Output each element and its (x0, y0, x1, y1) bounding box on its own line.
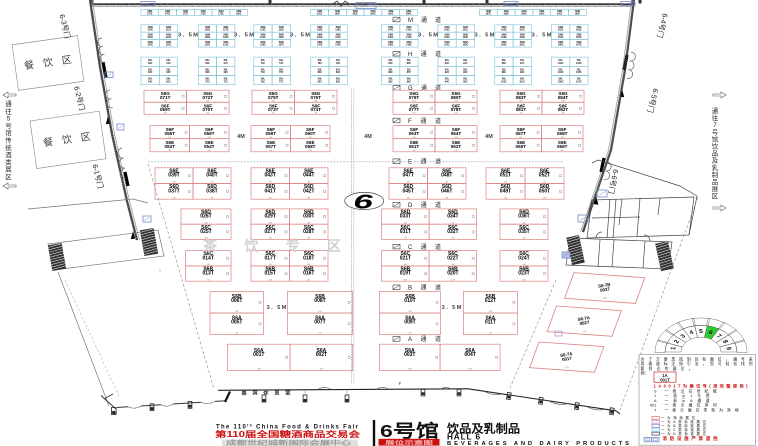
svg-text:154C: 154C (444, 44, 450, 47)
svg-text:033T: 033T (400, 214, 411, 220)
svg-text:3. 5M: 3. 5M (234, 33, 254, 39)
svg-text:147C: 147C (406, 36, 412, 39)
svg-text:009T: 009T (404, 320, 415, 326)
svg-text:86C: 86C (388, 71, 393, 74)
svg-text:号: 号 (5, 122, 11, 130)
svg-text:121C: 121C (166, 29, 172, 32)
svg-text:006T: 006T (231, 298, 242, 304)
svg-text:3. 5M: 3. 5M (267, 305, 287, 311)
svg-text:181C: 181C (317, 13, 323, 16)
svg-text:10M: 10M (468, 369, 472, 371)
svg-text:139C: 139C (335, 29, 341, 32)
svg-text:乳: 乳 (712, 163, 719, 172)
svg-text:6M: 6M (413, 150, 416, 152)
svg-text:137C: 137C (278, 44, 284, 47)
svg-text:60C: 60C (148, 62, 153, 65)
svg-text:186C: 186C (406, 13, 412, 16)
svg-text:5: 5 (699, 329, 704, 335)
svg-text:164C: 164C (558, 36, 564, 39)
svg-text:052T: 052T (539, 173, 550, 179)
svg-text:022T: 022T (447, 255, 458, 261)
svg-text:馆: 馆 (712, 134, 718, 143)
svg-text:6M: 6M (562, 112, 565, 114)
svg-text:012T: 012T (485, 298, 496, 304)
svg-text:002T: 002T (316, 352, 327, 358)
svg-text:6M: 6M (404, 279, 407, 281)
svg-text:6M: 6M (314, 112, 317, 114)
svg-text:3. 5M: 3. 5M (442, 305, 462, 311)
svg-text:007T: 007T (314, 320, 325, 326)
svg-text:192C: 192C (575, 13, 581, 16)
svg-text:048T: 048T (441, 173, 452, 179)
svg-text:043T: 043T (264, 173, 275, 179)
svg-text:62C: 62C (148, 71, 153, 74)
svg-text:6M: 6M (452, 238, 455, 240)
svg-text:6M: 6M (207, 279, 210, 281)
svg-text:F: F (399, 381, 402, 386)
svg-text:020T: 020T (447, 271, 458, 277)
svg-text:008T: 008T (314, 298, 325, 304)
svg-text:026T: 026T (200, 214, 211, 220)
svg-text:054T: 054T (204, 144, 215, 149)
svg-text:128C: 128C (205, 36, 211, 39)
svg-text:143C: 143C (335, 44, 341, 47)
svg-text:129C: 129C (223, 36, 229, 39)
svg-text:6M: 6M (319, 333, 322, 335)
svg-text:005T: 005T (231, 320, 242, 326)
svg-text:96C: 96C (502, 62, 507, 65)
svg-text:036T: 036T (518, 214, 529, 220)
svg-text:166C: 166C (558, 44, 564, 47)
svg-text:057T: 057T (266, 144, 277, 149)
svg-text:83C: 83C (336, 80, 341, 83)
svg-text:71C: 71C (224, 80, 229, 83)
svg-text:类: 类 (5, 157, 12, 166)
svg-text:6M: 6M (307, 279, 310, 281)
svg-text:6M: 6M (445, 197, 448, 199)
svg-text:001: 001 (650, 404, 656, 408)
svg-text:140C: 140C (317, 36, 323, 39)
svg-text:74C: 74C (261, 71, 266, 74)
svg-text:034T: 034T (447, 214, 458, 220)
svg-text:6M: 6M (455, 150, 458, 152)
svg-text:3. 5M: 3. 5M (418, 33, 438, 39)
svg-text:6M: 6M (307, 197, 310, 199)
svg-text:014T: 014T (202, 255, 213, 261)
svg-text:056T: 056T (204, 131, 215, 136)
svg-text:展: 展 (712, 185, 719, 193)
svg-text:024T: 024T (518, 255, 529, 261)
svg-text:12M: 12M (582, 330, 587, 333)
svg-text:80C: 80C (318, 71, 323, 74)
svg-text:046T: 046T (441, 188, 452, 194)
svg-text:029T: 029T (264, 214, 275, 220)
svg-text:068T: 068T (557, 131, 568, 136)
svg-text:152C: 152C (444, 36, 450, 39)
svg-text:87C: 87C (407, 71, 412, 74)
svg-text:70C: 70C (205, 80, 210, 83)
svg-text:051T: 051T (500, 173, 511, 179)
svg-text:展位示意图: 展位示意图 (385, 438, 433, 446)
svg-text:4M: 4M (364, 134, 372, 140)
svg-text:3. 5M: 3. 5M (178, 33, 198, 39)
svg-text:047T: 047T (402, 173, 413, 179)
svg-text:6M: 6M (168, 150, 171, 152)
svg-text:067T: 067T (516, 131, 527, 136)
svg-text:162C: 162C (558, 29, 564, 32)
svg-text:027T: 027T (264, 229, 275, 235)
svg-text:031T: 031T (400, 229, 411, 235)
svg-text:6M: 6M (309, 150, 312, 152)
svg-text:136C: 136C (260, 44, 266, 47)
svg-text:134C: 134C (260, 36, 266, 39)
svg-text:82C: 82C (318, 80, 323, 83)
svg-text:为了方便您找到目标展位，编号采: 为了方便您找到目标展位，编号采 (641, 356, 753, 361)
svg-text:030T: 030T (303, 214, 314, 220)
svg-text:69C: 69C (224, 71, 229, 74)
svg-text:91C: 91C (463, 62, 468, 65)
svg-text:165C: 165C (576, 36, 582, 39)
svg-text:5: 5 (7, 116, 11, 123)
svg-text:003T: 003T (404, 352, 415, 358)
svg-text:67C: 67C (224, 62, 229, 65)
svg-text:123C: 123C (166, 36, 172, 39)
svg-text:12M: 12M (602, 297, 607, 300)
svg-text:6M: 6M (307, 238, 310, 240)
svg-text:148C: 148C (388, 44, 394, 47)
svg-text:101C: 101C (519, 80, 525, 83)
svg-text:89C: 89C (407, 80, 412, 83)
svg-text:6M: 6M (489, 333, 492, 335)
svg-text:3. 5M: 3. 5M (290, 33, 310, 39)
svg-text:179C: 179C (218, 13, 224, 16)
svg-text:144C: 144C (388, 29, 394, 32)
svg-text:6号馆: 6号馆 (380, 421, 439, 441)
svg-text:042T: 042T (303, 188, 314, 194)
svg-text:141C: 141C (335, 36, 341, 39)
svg-text:035T: 035T (518, 229, 529, 235)
svg-text:第110届全国糖酒商品交易会: 第110届全国糖酒商品交易会 (215, 429, 361, 439)
svg-text:138C: 138C (317, 29, 323, 32)
svg-text:64C: 64C (148, 80, 153, 83)
svg-text:105C: 105C (576, 71, 582, 74)
svg-text:058T: 058T (305, 144, 316, 149)
svg-text:6M: 6M (208, 150, 211, 152)
svg-text:182C: 182C (335, 13, 341, 16)
svg-text:往: 往 (712, 113, 719, 122)
svg-text:021T: 021T (400, 255, 411, 261)
svg-text:158C: 158C (501, 36, 507, 39)
svg-text:展: 展 (5, 166, 12, 174)
svg-text:038T: 038T (206, 188, 217, 194)
svg-text:135C: 135C (278, 36, 284, 39)
svg-text:132C: 132C (260, 29, 266, 32)
svg-text:183C: 183C (352, 13, 358, 16)
svg-text:023T: 023T (518, 271, 529, 277)
svg-text:61C: 61C (166, 62, 171, 65)
svg-text:157C: 157C (519, 29, 525, 32)
svg-text:6M: 6M (520, 112, 523, 114)
svg-text:061T: 061T (409, 144, 420, 149)
svg-text:95C: 95C (463, 80, 468, 83)
svg-text:155C: 155C (462, 44, 468, 47)
svg-text:通: 通 (5, 99, 12, 108)
svg-text:7: 7 (713, 122, 717, 129)
svg-text:例：: 例： (641, 370, 649, 376)
svg-text:188C: 188C (503, 13, 509, 16)
svg-text:10M: 10M (257, 369, 261, 371)
svg-text:号: 号 (712, 128, 718, 136)
svg-text:145C: 145C (406, 29, 412, 32)
svg-text:041T: 041T (264, 188, 275, 194)
svg-text:88C: 88C (388, 80, 393, 83)
svg-text:120C: 120C (147, 29, 153, 32)
svg-text:通: 通 (712, 106, 719, 115)
svg-text:4M: 4M (485, 134, 493, 140)
svg-text:区: 区 (5, 173, 12, 181)
svg-text:049T: 049T (500, 188, 511, 194)
svg-text:93C: 93C (463, 71, 468, 74)
svg-text:制: 制 (712, 170, 718, 179)
svg-text:017T: 017T (264, 255, 275, 261)
svg-text:6M: 6M (409, 333, 412, 335)
svg-text:185C: 185C (388, 13, 394, 16)
svg-text:6M: 6M (206, 112, 209, 114)
svg-text:149C: 149C (406, 44, 412, 47)
svg-text:65C: 65C (166, 80, 171, 83)
svg-text:6M: 6M (164, 112, 167, 114)
svg-text:106C: 106C (558, 80, 564, 83)
svg-text:66C: 66C (205, 62, 210, 65)
svg-text:76C: 76C (261, 80, 266, 83)
svg-text:050T: 050T (539, 188, 550, 194)
svg-text:统: 统 (5, 143, 12, 152)
svg-text:6M: 6M (455, 112, 458, 114)
svg-text:98C: 98C (502, 71, 507, 74)
svg-text:6M: 6M (543, 197, 546, 199)
svg-text:3. 5M: 3. 5M (532, 33, 552, 39)
svg-text:063T: 063T (409, 131, 420, 136)
svg-text:045T: 045T (402, 188, 413, 194)
svg-text:90C: 90C (445, 62, 450, 65)
svg-text:156C: 156C (501, 29, 507, 32)
svg-text:178C: 178C (200, 13, 206, 16)
svg-text:往: 往 (5, 106, 12, 115)
svg-text:153C: 153C (462, 36, 468, 39)
svg-text:10M: 10M (408, 369, 412, 371)
svg-text:6M: 6M (504, 197, 507, 199)
svg-text:M通道: M通道 (408, 16, 441, 24)
svg-text:064T: 064T (451, 131, 462, 136)
svg-text:97C: 97C (520, 62, 525, 65)
svg-text:126C: 126C (205, 29, 211, 32)
svg-text:060T: 060T (305, 131, 316, 136)
svg-text:160C: 160C (501, 44, 507, 47)
svg-text:127C: 127C (223, 29, 229, 32)
svg-text:79C: 79C (336, 62, 341, 65)
svg-text:78C: 78C (318, 62, 323, 65)
svg-text:125C: 125C (166, 44, 172, 47)
svg-text:016T: 016T (303, 271, 314, 277)
svg-text:6M: 6M (269, 197, 272, 199)
svg-text:6M: 6M (407, 197, 410, 199)
svg-text:6M: 6M (235, 333, 238, 335)
svg-text:032T: 032T (447, 229, 458, 235)
svg-text:142C: 142C (317, 44, 323, 47)
svg-text:传: 传 (5, 136, 12, 145)
svg-text:12M: 12M (564, 366, 569, 369)
svg-text:124C: 124C (147, 44, 153, 47)
svg-text:150C: 150C (444, 29, 450, 32)
svg-text:013T: 013T (202, 271, 213, 277)
svg-text:6M: 6M (523, 279, 526, 281)
svg-text:001T: 001T (253, 352, 264, 358)
svg-text:177C: 177C (183, 13, 189, 16)
svg-text:饮: 饮 (712, 142, 719, 151)
svg-text:167C: 167C (576, 44, 582, 47)
svg-text:163C: 163C (576, 29, 582, 32)
svg-text:77C: 77C (279, 80, 284, 83)
svg-text:190C: 190C (539, 13, 545, 16)
svg-text:馆: 馆 (5, 128, 11, 137)
svg-text:104C: 104C (558, 71, 564, 74)
svg-text:055T: 055T (165, 131, 176, 136)
svg-text:品: 品 (712, 178, 718, 186)
svg-text:176C: 176C (165, 13, 171, 16)
svg-text:6M: 6M (413, 112, 416, 114)
svg-text:99C: 99C (520, 71, 525, 74)
svg-text:6M: 6M (404, 238, 407, 240)
svg-text:044T: 044T (303, 173, 314, 179)
svg-text:062T: 062T (451, 144, 462, 149)
svg-text:133C: 133C (278, 29, 284, 32)
svg-text:品: 品 (712, 150, 718, 158)
svg-text:028T: 028T (303, 229, 314, 235)
svg-text:73C: 73C (279, 62, 284, 65)
svg-text:6M: 6M (173, 197, 176, 199)
svg-text:130C: 130C (205, 44, 211, 47)
svg-text:1: 1 (654, 394, 656, 398)
svg-text:053T: 053T (165, 144, 176, 149)
svg-text:区: 区 (712, 192, 719, 200)
svg-text:6M: 6M (269, 238, 272, 240)
svg-text:84C: 84C (388, 62, 393, 65)
svg-text:187C: 187C (486, 13, 492, 16)
svg-text:004T: 004T (464, 352, 475, 358)
svg-text:018T: 018T (303, 255, 314, 261)
svg-text:066T: 066T (557, 144, 568, 149)
svg-text:059T: 059T (266, 131, 277, 136)
svg-text:3. 5M: 3. 5M (475, 33, 495, 39)
svg-text:成都世纪城新国际会展中心: 成都世纪城新国际会展中心 (226, 439, 351, 446)
svg-text:68C: 68C (205, 71, 210, 74)
svg-text:025T: 025T (200, 229, 211, 235)
svg-text:100C: 100C (501, 80, 507, 83)
svg-text:146C: 146C (388, 36, 394, 39)
svg-text:75C: 75C (279, 71, 284, 74)
svg-text:63C: 63C (166, 71, 171, 74)
svg-text:及: 及 (712, 157, 719, 165)
svg-text:85C: 85C (407, 62, 412, 65)
svg-text:6M: 6M (269, 279, 272, 281)
svg-text:040T: 040T (206, 173, 217, 179)
svg-text:001T: 001T (660, 377, 670, 382)
svg-text:6M: 6M (561, 150, 564, 152)
svg-text:72C: 72C (261, 62, 266, 65)
svg-text:6M: 6M (523, 238, 526, 240)
svg-text:酒: 酒 (5, 151, 12, 159)
svg-text:065T: 065T (516, 144, 527, 149)
svg-text:037T: 037T (168, 188, 179, 194)
svg-text:6M: 6M (269, 150, 272, 152)
svg-text:81C: 81C (336, 71, 341, 74)
svg-text:019T: 019T (400, 271, 411, 277)
svg-text:159C: 159C (519, 36, 525, 39)
svg-text:107C: 107C (576, 80, 582, 83)
svg-text:6M: 6M (211, 197, 214, 199)
svg-text:94C: 94C (445, 80, 450, 83)
svg-text:180C: 180C (236, 13, 242, 16)
svg-text:4M: 4M (237, 134, 245, 140)
svg-text:6M: 6M (519, 150, 522, 152)
svg-text:102C: 102C (558, 62, 564, 65)
svg-text:6: 6 (353, 191, 374, 213)
svg-text:015T: 015T (264, 271, 275, 277)
svg-text:92C: 92C (445, 71, 450, 74)
svg-text:131C: 131C (223, 44, 229, 47)
svg-text:039T: 039T (168, 173, 179, 179)
svg-text:103C: 103C (576, 62, 582, 65)
svg-text:184C: 184C (370, 13, 376, 16)
svg-text:122C: 122C (147, 36, 153, 39)
svg-text:10M: 10M (319, 369, 323, 371)
svg-text:191C: 191C (557, 13, 563, 16)
svg-text:用通道标注指引法，您可轻松找到: 用通道标注指引法，您可轻松找到 (641, 361, 753, 366)
svg-text:010T: 010T (404, 298, 415, 304)
svg-text:6M: 6M (452, 279, 455, 281)
svg-text:6M: 6M (272, 112, 275, 114)
svg-text:161C: 161C (519, 44, 525, 47)
svg-text:011T: 011T (485, 320, 496, 326)
svg-text:151C: 151C (462, 29, 468, 32)
svg-text:175C: 175C (147, 13, 153, 16)
svg-text:189C: 189C (521, 13, 527, 16)
